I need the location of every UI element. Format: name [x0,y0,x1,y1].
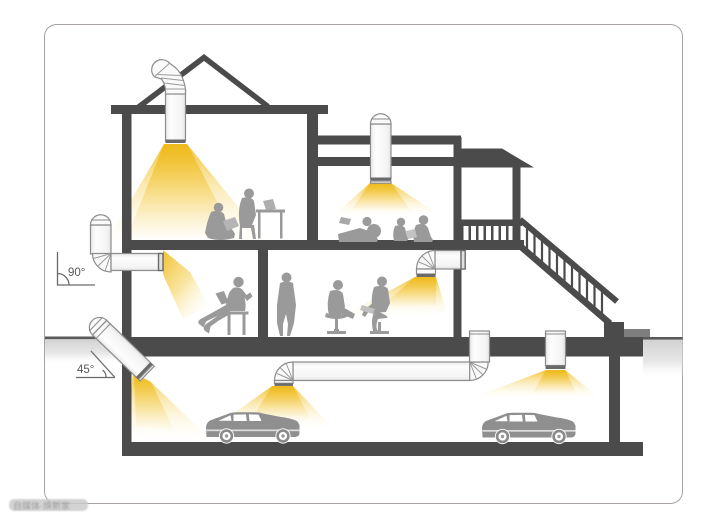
svg-text:自媒体·焕新家: 自媒体·焕新家 [13,500,70,511]
svg-text:90°: 90° [68,267,85,279]
svg-text:45°: 45° [77,364,94,376]
